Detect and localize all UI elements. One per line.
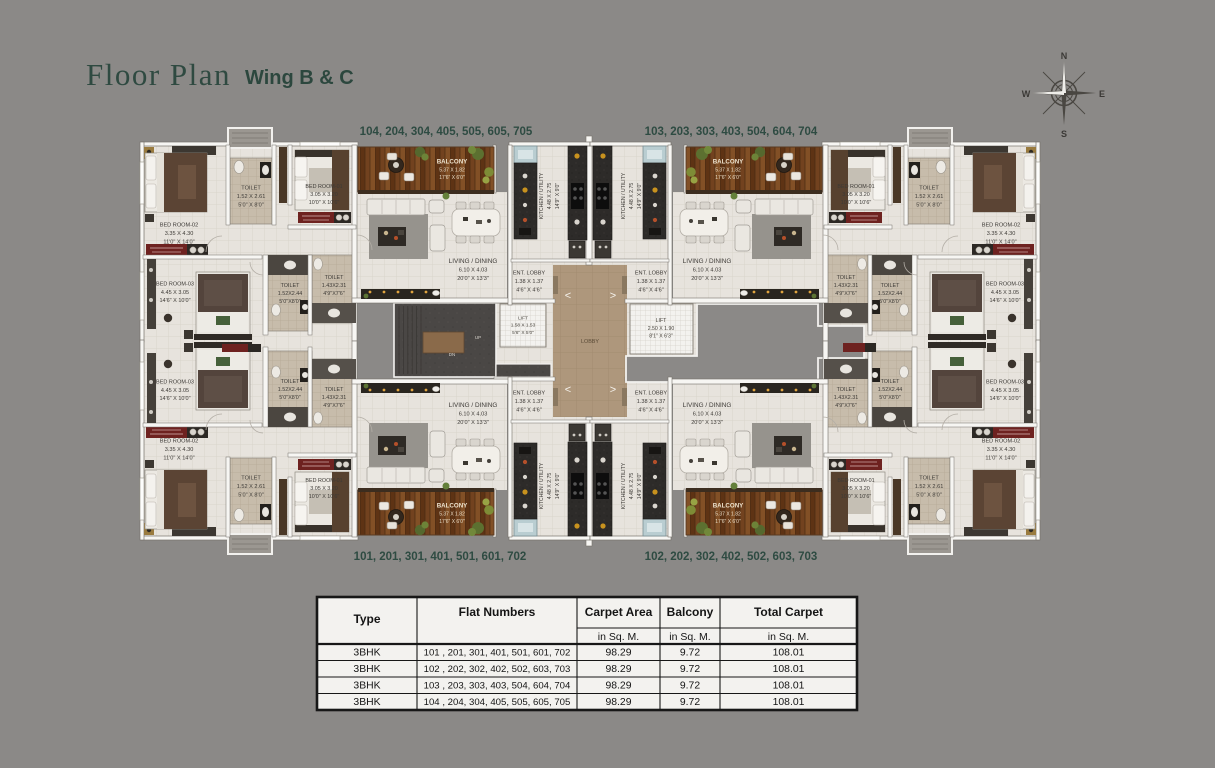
- svg-text:108.01: 108.01: [773, 648, 805, 659]
- svg-text:14'9" X 9'0": 14'9" X 9'0": [555, 183, 561, 210]
- svg-text:3.05 X 3.20: 3.05 X 3.20: [842, 486, 870, 492]
- svg-text:BED ROOM-01: BED ROOM-01: [305, 184, 342, 190]
- svg-text:5'0" X 8'0": 5'0" X 8'0": [916, 492, 941, 498]
- svg-text:103 , 203, 303, 403, 504, 604,: 103 , 203, 303, 403, 504, 604, 704: [424, 681, 571, 692]
- svg-text:14'6" X 10'0": 14'6" X 10'0": [989, 298, 1020, 304]
- svg-text:4'6" X 4'6": 4'6" X 4'6": [516, 287, 541, 293]
- svg-text:UP: UP: [475, 335, 481, 340]
- svg-text:4'9"X7'6": 4'9"X7'6": [835, 403, 857, 409]
- svg-text:4.48 X 2.75: 4.48 X 2.75: [629, 183, 635, 210]
- svg-text:TOILET: TOILET: [837, 275, 856, 281]
- svg-text:6.10 X 4.03: 6.10 X 4.03: [693, 412, 722, 418]
- svg-text:TOILET: TOILET: [241, 186, 261, 192]
- svg-text:4'6" X 4'6": 4'6" X 4'6": [638, 407, 663, 413]
- svg-text:Wing B & C: Wing B & C: [245, 67, 354, 89]
- svg-text:102, 202, 302, 402, 502, 603,: 102, 202, 302, 402, 502, 603, 703: [645, 551, 818, 563]
- svg-text:DN: DN: [449, 352, 456, 357]
- svg-text:1.52 X 2.61: 1.52 X 2.61: [915, 484, 944, 490]
- svg-text:<: <: [565, 384, 571, 396]
- svg-text:BED ROOM-01: BED ROOM-01: [837, 478, 874, 484]
- svg-text:LIVING / DINING: LIVING / DINING: [449, 258, 498, 265]
- svg-text:Balcony: Balcony: [667, 605, 714, 619]
- svg-text:4.48 X 2.75: 4.48 X 2.75: [547, 473, 553, 500]
- svg-text:20'0" X 13'3": 20'0" X 13'3": [691, 420, 723, 426]
- svg-text:4.45 X 3.05: 4.45 X 3.05: [991, 388, 1019, 394]
- svg-text:5.37 X 1.82: 5.37 X 1.82: [715, 168, 741, 174]
- svg-text:17'6" X 6'0": 17'6" X 6'0": [439, 519, 465, 525]
- svg-text:LIVING / DINING: LIVING / DINING: [683, 258, 732, 265]
- svg-text:4.48 X 2.75: 4.48 X 2.75: [547, 183, 553, 210]
- svg-text:5.37 X 1.82: 5.37 X 1.82: [439, 512, 465, 518]
- svg-text:98.29: 98.29: [605, 664, 631, 675]
- svg-text:9.72: 9.72: [680, 697, 700, 708]
- svg-text:10'0" X 10'6": 10'0" X 10'6": [841, 200, 872, 206]
- svg-text:17'6" X 6'0": 17'6" X 6'0": [439, 175, 465, 181]
- svg-text:3.35 X 4.30: 3.35 X 4.30: [987, 231, 1016, 237]
- svg-text:1.52X2.44: 1.52X2.44: [278, 291, 303, 297]
- svg-text:BED ROOM-03: BED ROOM-03: [986, 282, 1024, 288]
- svg-text:5.37 X 1.82: 5.37 X 1.82: [439, 168, 465, 174]
- svg-text:KITCHEN / UTILITY: KITCHEN / UTILITY: [539, 462, 545, 509]
- svg-text:LIFT: LIFT: [518, 316, 528, 322]
- svg-text:10'0" X 10'6": 10'0" X 10'6": [841, 494, 872, 500]
- svg-text:Total Carpet: Total Carpet: [754, 605, 823, 619]
- svg-text:BED ROOM-02: BED ROOM-02: [982, 439, 1021, 445]
- svg-text:BALCONY: BALCONY: [713, 159, 744, 166]
- svg-text:1.38 X 1.37: 1.38 X 1.37: [637, 279, 666, 285]
- svg-text:TOILET: TOILET: [881, 379, 900, 385]
- svg-text:98.29: 98.29: [605, 681, 631, 692]
- svg-text:98.29: 98.29: [605, 648, 631, 659]
- svg-text:98.29: 98.29: [605, 697, 631, 708]
- svg-text:3.35 X 4.30: 3.35 X 4.30: [165, 447, 194, 453]
- svg-text:3.05 X 3.20: 3.05 X 3.20: [310, 486, 338, 492]
- svg-text:10'0" X 10'6": 10'0" X 10'6": [309, 200, 340, 206]
- svg-text:1.43X2.31: 1.43X2.31: [834, 283, 859, 289]
- svg-text:5.37 X 1.82: 5.37 X 1.82: [715, 512, 741, 518]
- svg-text:TOILET: TOILET: [837, 387, 856, 393]
- svg-text:Floor Plan: Floor Plan: [86, 57, 231, 92]
- svg-text:BED ROOM-01: BED ROOM-01: [837, 184, 874, 190]
- svg-text:BALCONY: BALCONY: [437, 159, 468, 166]
- svg-text:9.72: 9.72: [680, 648, 700, 659]
- svg-text:3.05 X 3.20: 3.05 X 3.20: [310, 192, 338, 198]
- svg-text:N: N: [1061, 51, 1068, 61]
- svg-text:TOILET: TOILET: [281, 283, 300, 289]
- svg-text:14'6" X 10'0": 14'6" X 10'0": [989, 396, 1020, 402]
- svg-text:20'0" X 13'3": 20'0" X 13'3": [457, 420, 489, 426]
- svg-text:Type: Type: [353, 612, 380, 626]
- svg-text:5'0" X 8'0": 5'0" X 8'0": [238, 492, 263, 498]
- svg-text:101, 201, 301, 401, 501, 601,: 101, 201, 301, 401, 501, 601, 702: [354, 551, 527, 563]
- svg-text:6.10 X 4.03: 6.10 X 4.03: [459, 412, 488, 418]
- svg-text:>: >: [610, 384, 616, 396]
- svg-text:ENT. LOBBY: ENT. LOBBY: [513, 271, 546, 277]
- svg-text:LOBBY: LOBBY: [581, 339, 599, 345]
- svg-text:5'6" X 5'0": 5'6" X 5'0": [512, 330, 534, 336]
- svg-text:1.52 X 2.61: 1.52 X 2.61: [237, 194, 266, 200]
- svg-text:E: E: [1099, 89, 1105, 99]
- svg-text:2.50 X 1.90: 2.50 X 1.90: [648, 326, 675, 332]
- svg-text:1.43X2.31: 1.43X2.31: [322, 283, 347, 289]
- svg-text:BED ROOM-01: BED ROOM-01: [305, 478, 342, 484]
- svg-text:BED ROOM-02: BED ROOM-02: [160, 223, 199, 229]
- svg-text:4.45 X 3.05: 4.45 X 3.05: [161, 388, 189, 394]
- svg-text:10'0" X 10'6": 10'0" X 10'6": [309, 494, 340, 500]
- svg-text:KITCHEN / UTILITY: KITCHEN / UTILITY: [539, 172, 545, 219]
- svg-text:<: <: [565, 290, 571, 302]
- svg-text:1.52X2.44: 1.52X2.44: [878, 291, 903, 297]
- svg-text:BED ROOM-02: BED ROOM-02: [160, 439, 199, 445]
- svg-text:1.58 X 1.53: 1.58 X 1.53: [511, 323, 536, 329]
- svg-text:3BHK: 3BHK: [353, 664, 380, 675]
- svg-text:4'6" X 4'6": 4'6" X 4'6": [516, 407, 541, 413]
- svg-text:TOILET: TOILET: [919, 186, 939, 192]
- svg-text:11'0" X 14'0": 11'0" X 14'0": [163, 455, 194, 461]
- svg-text:in Sq. M.: in Sq. M.: [669, 631, 710, 643]
- svg-text:5'0"X8'0": 5'0"X8'0": [279, 299, 301, 305]
- svg-text:108.01: 108.01: [773, 681, 805, 692]
- svg-text:in Sq. M.: in Sq. M.: [768, 631, 809, 643]
- svg-text:TOILET: TOILET: [325, 275, 344, 281]
- svg-text:6.10 X 4.03: 6.10 X 4.03: [459, 268, 488, 274]
- svg-text:17'6" X 6'0": 17'6" X 6'0": [715, 175, 741, 181]
- svg-text:20'0" X 13'3": 20'0" X 13'3": [457, 276, 489, 282]
- svg-text:1.52 X 2.61: 1.52 X 2.61: [237, 484, 266, 490]
- svg-text:14'6" X 10'0": 14'6" X 10'0": [159, 298, 190, 304]
- svg-text:14'9" X 9'0": 14'9" X 9'0": [637, 473, 643, 500]
- svg-text:9.72: 9.72: [680, 664, 700, 675]
- svg-text:BED ROOM-03: BED ROOM-03: [156, 282, 194, 288]
- svg-text:108.01: 108.01: [773, 664, 805, 675]
- svg-text:5'0" X 8'0": 5'0" X 8'0": [238, 202, 263, 208]
- svg-text:104, 204, 304, 405, 505, 605,: 104, 204, 304, 405, 505, 605, 705: [360, 126, 533, 138]
- svg-text:ENT. LOBBY: ENT. LOBBY: [635, 271, 668, 277]
- svg-text:Flat Numbers: Flat Numbers: [459, 605, 536, 619]
- svg-text:4'6" X 4'6": 4'6" X 4'6": [638, 287, 663, 293]
- svg-text:TOILET: TOILET: [281, 379, 300, 385]
- svg-text:3.35 X 4.30: 3.35 X 4.30: [987, 447, 1016, 453]
- svg-text:5'0" X 8'0": 5'0" X 8'0": [916, 202, 941, 208]
- svg-text:ENT. LOBBY: ENT. LOBBY: [513, 391, 546, 397]
- svg-text:LIFT: LIFT: [656, 318, 667, 324]
- svg-text:KITCHEN / UTILITY: KITCHEN / UTILITY: [621, 462, 627, 509]
- svg-text:BED ROOM-03: BED ROOM-03: [156, 380, 194, 386]
- svg-text:108.01: 108.01: [773, 697, 805, 708]
- svg-text:102 , 202, 302, 402, 502, 603,: 102 , 202, 302, 402, 502, 603, 703: [424, 664, 571, 675]
- svg-text:4.45 X 3.05: 4.45 X 3.05: [161, 290, 189, 296]
- svg-text:11'0" X 14'0": 11'0" X 14'0": [985, 455, 1016, 461]
- svg-text:1.38 X 1.37: 1.38 X 1.37: [515, 399, 544, 405]
- svg-text:LIVING / DINING: LIVING / DINING: [683, 402, 732, 409]
- svg-text:1.38 X 1.37: 1.38 X 1.37: [515, 279, 544, 285]
- svg-text:103, 203, 303, 403, 504, 604,: 103, 203, 303, 403, 504, 604, 704: [645, 126, 818, 138]
- svg-text:3BHK: 3BHK: [353, 681, 380, 692]
- svg-text:>: >: [610, 290, 616, 302]
- svg-text:1.52X2.44: 1.52X2.44: [278, 387, 303, 393]
- svg-text:LIVING / DINING: LIVING / DINING: [449, 402, 498, 409]
- svg-text:TOILET: TOILET: [881, 283, 900, 289]
- svg-text:KITCHEN / UTILITY: KITCHEN / UTILITY: [621, 172, 627, 219]
- svg-text:4'9"X7'6": 4'9"X7'6": [323, 291, 345, 297]
- svg-text:14'9" X 9'0": 14'9" X 9'0": [555, 473, 561, 500]
- svg-text:ENT. LOBBY: ENT. LOBBY: [635, 391, 668, 397]
- svg-text:8'1" X 6'3": 8'1" X 6'3": [649, 334, 673, 340]
- svg-text:TOILET: TOILET: [241, 476, 261, 482]
- svg-text:BALCONY: BALCONY: [437, 503, 468, 510]
- svg-text:W: W: [1022, 89, 1031, 99]
- svg-text:6.10 X 4.03: 6.10 X 4.03: [693, 268, 722, 274]
- svg-text:17'6" X 6'0": 17'6" X 6'0": [715, 519, 741, 525]
- svg-text:4'9"X7'6": 4'9"X7'6": [835, 291, 857, 297]
- svg-text:4.45 X 3.05: 4.45 X 3.05: [991, 290, 1019, 296]
- svg-text:1.52 X 2.61: 1.52 X 2.61: [915, 194, 944, 200]
- svg-text:4.48 X 2.75: 4.48 X 2.75: [629, 473, 635, 500]
- svg-text:101 , 201, 301, 401, 501, 601,: 101 , 201, 301, 401, 501, 601, 702: [424, 648, 571, 659]
- svg-text:3.35 X 4.30: 3.35 X 4.30: [165, 231, 194, 237]
- svg-text:9.72: 9.72: [680, 681, 700, 692]
- svg-text:4'9"X7'6": 4'9"X7'6": [323, 403, 345, 409]
- svg-text:BED ROOM-03: BED ROOM-03: [986, 380, 1024, 386]
- svg-text:Carpet Area: Carpet Area: [585, 605, 653, 619]
- svg-text:1.43X2.31: 1.43X2.31: [322, 395, 347, 401]
- svg-text:BED ROOM-02: BED ROOM-02: [982, 223, 1021, 229]
- svg-text:1.52X2.44: 1.52X2.44: [878, 387, 903, 393]
- svg-text:14'6" X 10'0": 14'6" X 10'0": [159, 396, 190, 402]
- svg-text:5'0"X8'0": 5'0"X8'0": [279, 395, 301, 401]
- svg-text:20'0" X 13'3": 20'0" X 13'3": [691, 276, 723, 282]
- svg-text:5'0"X8'0": 5'0"X8'0": [879, 395, 901, 401]
- svg-text:1.38 X 1.37: 1.38 X 1.37: [637, 399, 666, 405]
- svg-text:BALCONY: BALCONY: [713, 503, 744, 510]
- svg-text:5'0"X8'0": 5'0"X8'0": [879, 299, 901, 305]
- svg-text:in Sq. M.: in Sq. M.: [598, 631, 639, 643]
- svg-text:TOILET: TOILET: [919, 476, 939, 482]
- svg-text:3BHK: 3BHK: [353, 697, 380, 708]
- svg-text:1.43X2.31: 1.43X2.31: [834, 395, 859, 401]
- svg-text:3BHK: 3BHK: [353, 648, 380, 659]
- svg-text:TOILET: TOILET: [325, 387, 344, 393]
- svg-text:14'9" X 9'0": 14'9" X 9'0": [637, 183, 643, 210]
- svg-text:104 , 204, 304, 405, 505, 605,: 104 , 204, 304, 405, 505, 605, 705: [424, 697, 571, 708]
- svg-text:S: S: [1061, 129, 1067, 139]
- svg-text:3.05 X 3.20: 3.05 X 3.20: [842, 192, 870, 198]
